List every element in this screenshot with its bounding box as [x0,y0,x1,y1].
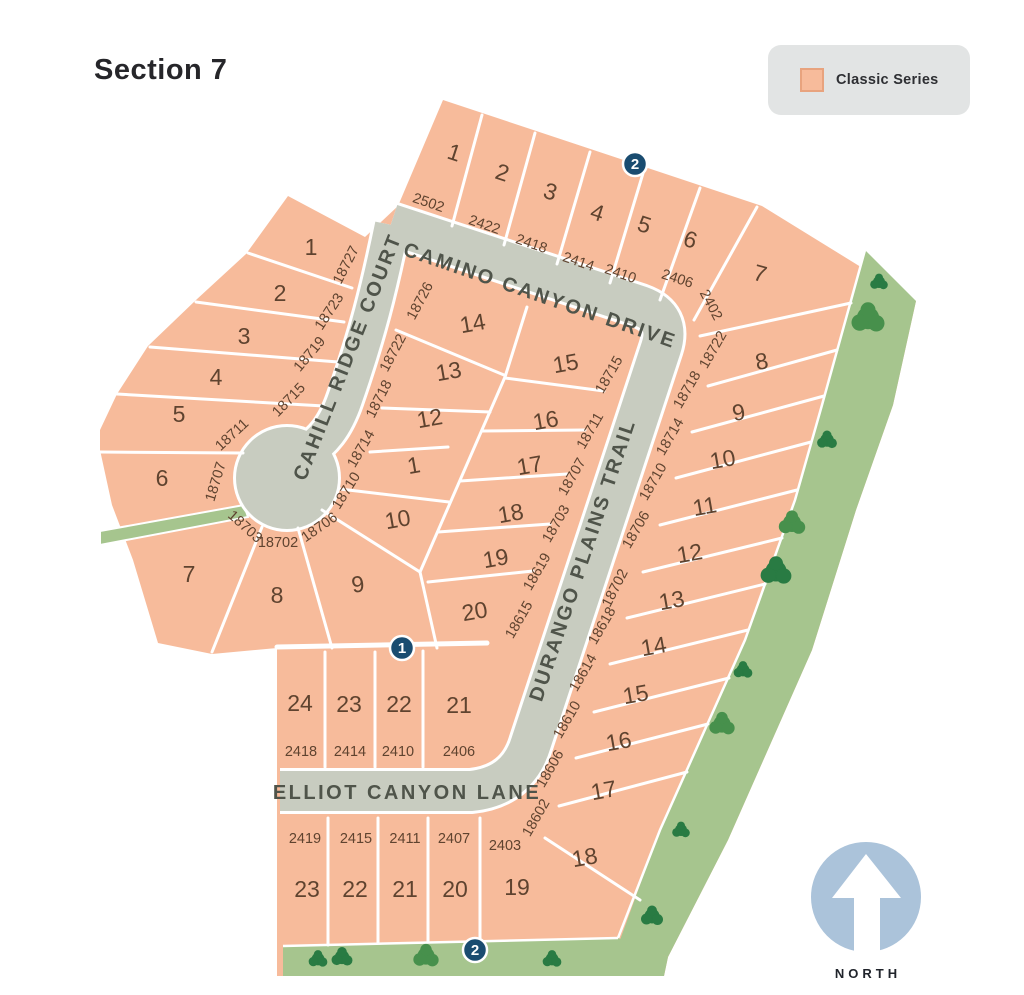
marker-badge-bottom: 2 [463,938,487,962]
street-label-elliot: ELLIOT CANYON LANE [273,782,541,804]
marker-number: 2 [631,156,639,173]
lot-number: 12 [675,538,705,568]
lot-number: 21 [392,876,418,902]
marker-badge-top: 2 [623,152,647,176]
lot-number: 23 [294,876,320,902]
lot-number: 4 [210,364,223,390]
lot-address: 2418 [285,744,317,760]
lot-number: 18 [570,842,600,872]
site-plan-map: CAMINO CANYON DRIVE CAHILL RIDGE COURT D… [0,0,1024,995]
lot-number: 16 [531,405,561,435]
lot-address: 2411 [389,831,420,847]
lot-number: 6 [156,465,169,491]
lot-number: 5 [173,401,186,427]
lot-address: 2415 [340,831,372,847]
marker-number: 1 [398,640,406,657]
lot-number: 17 [589,775,619,805]
lot-number: 20 [460,596,490,626]
lot-address: 2419 [289,831,321,847]
lot-number: 14 [639,631,669,661]
lot-number: 22 [386,691,412,717]
lot-number: 18 [496,498,526,528]
lot-number: 15 [551,348,581,378]
lot-address: 2403 [489,838,521,854]
lot-address: 2407 [438,831,470,847]
lot-number: 2 [274,280,287,306]
lot-number: 10 [383,504,413,534]
marker-badge-mid: 1 [390,636,414,660]
north-label: NORTH [835,966,901,981]
lot-number: 8 [271,582,284,608]
lot-number: 21 [446,692,472,718]
lot-number: 7 [183,561,196,587]
lot-number: 1 [305,234,318,260]
lot-address: 2410 [382,744,414,760]
lot-number: 23 [336,691,362,717]
marker-number: 2 [471,942,479,959]
lot-number: 13 [657,585,687,615]
lot-number: 19 [481,543,511,573]
lot-number: 15 [621,679,651,709]
lot-number: 24 [287,690,313,716]
site-plan-page: Section 7 Classic Series [0,0,1024,995]
lot-number: 10 [708,444,738,474]
lot-number: 17 [515,450,545,480]
lot-address: 2414 [334,744,366,760]
lot-number: 13 [434,356,464,386]
north-arrow: NORTH [811,842,921,981]
lot-number: 19 [504,874,530,900]
lot-number: 22 [342,876,368,902]
lot-number: 16 [604,726,634,756]
lot-address: 18702 [258,535,298,551]
lot-number: 20 [442,876,468,902]
lot-number: 14 [458,308,488,338]
lot-number: 12 [415,403,445,433]
lot-number: 3 [238,323,251,349]
lot-number: 11 [691,491,719,521]
lot-address: 2406 [443,744,475,760]
